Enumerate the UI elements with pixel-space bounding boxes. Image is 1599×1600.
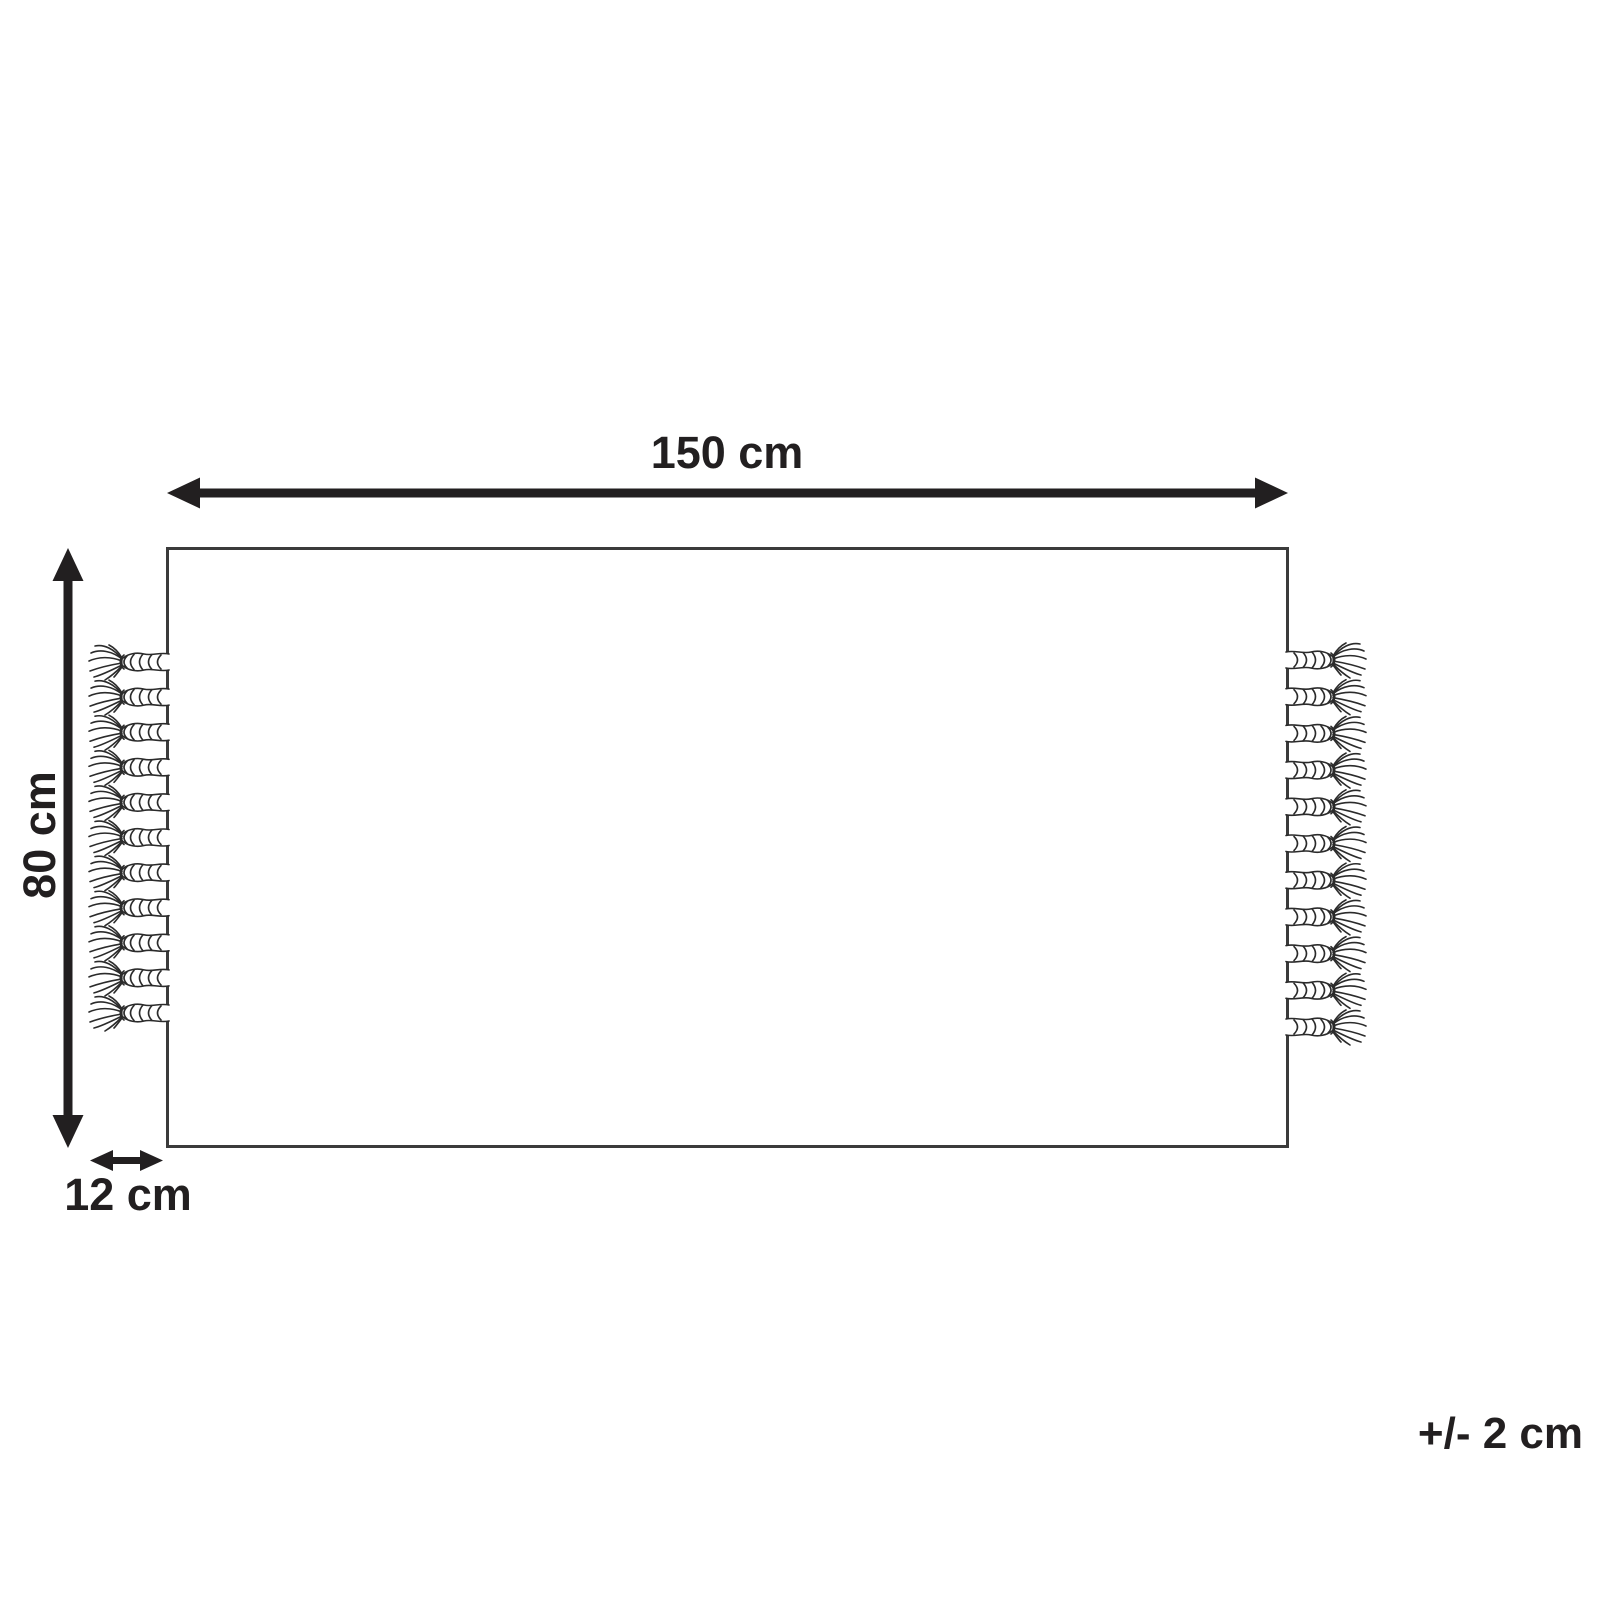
tassel-icon — [1286, 753, 1366, 788]
left-fringe — [89, 645, 169, 1031]
height-label: 80 cm — [12, 685, 68, 985]
tassel-icon — [1286, 716, 1366, 751]
tassel-icon — [89, 750, 169, 785]
tassel-icon — [89, 680, 169, 715]
tassel-icon — [1286, 1010, 1366, 1045]
rug-outline — [168, 549, 1288, 1147]
tassel-icon — [89, 821, 169, 856]
tassel-icon — [1286, 937, 1366, 972]
tassel-icon — [89, 785, 169, 820]
right-fringe — [1286, 643, 1366, 1045]
fringe-label: 12 cm — [28, 1170, 228, 1220]
tassel-icon — [1286, 680, 1366, 715]
tassel-icon — [1286, 827, 1366, 862]
tassel-icon — [89, 856, 169, 891]
tassel-icon — [1286, 790, 1366, 825]
width-label: 150 cm — [527, 428, 927, 478]
tassel-icon — [1286, 973, 1366, 1008]
tassel-icon — [89, 645, 169, 680]
fringe-dimension-arrow — [90, 1150, 163, 1171]
tassel-icon — [89, 715, 169, 750]
tassel-icon — [1286, 863, 1366, 898]
tassel-icon — [89, 926, 169, 961]
tassel-icon — [89, 996, 169, 1031]
tassel-icon — [89, 961, 169, 996]
tassel-icon — [1286, 643, 1366, 678]
width-dimension-arrow — [167, 478, 1288, 509]
dimension-diagram: 150 cm 80 cm 12 cm +/- 2 cm — [0, 0, 1599, 1600]
rug-diagram-canvas — [0, 0, 1599, 1600]
tolerance-label: +/- 2 cm — [1418, 1410, 1583, 1458]
tassel-icon — [1286, 900, 1366, 935]
tassel-icon — [89, 891, 169, 926]
